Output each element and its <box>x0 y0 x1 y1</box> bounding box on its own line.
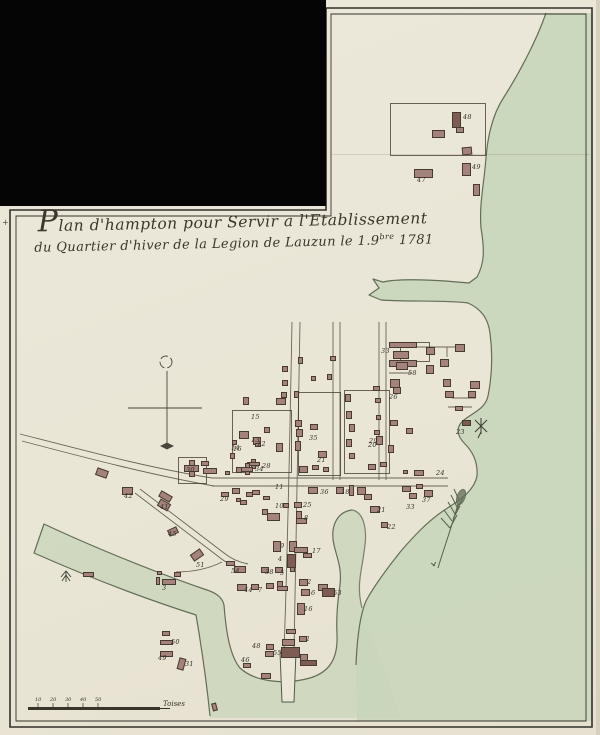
building <box>276 398 286 405</box>
building <box>364 494 372 500</box>
building <box>323 467 329 472</box>
building <box>232 488 240 494</box>
building-number-label: 21 <box>377 507 386 513</box>
building <box>375 398 381 403</box>
building-number-label: 49 <box>158 655 167 661</box>
building-number-label: 18 <box>341 489 350 495</box>
building <box>432 130 445 138</box>
building-number-label: 23 <box>456 429 465 435</box>
scale-tick-label: 40 <box>79 697 87 703</box>
building <box>277 586 288 591</box>
building <box>282 380 288 386</box>
paper-edge <box>596 0 600 735</box>
building-number-label: 16 <box>233 446 242 452</box>
building-number-label: 29 <box>220 496 229 502</box>
building <box>373 386 380 391</box>
building <box>374 430 380 435</box>
building <box>440 359 449 367</box>
building-number-label: 29 <box>369 438 378 444</box>
building-number-label: 35 <box>309 435 318 441</box>
building <box>455 344 465 352</box>
building-number-label: 54 <box>231 568 240 574</box>
building-number-label: 4 <box>278 556 282 562</box>
building-number-label: 17 <box>312 548 321 554</box>
building-number-label: 31 <box>185 661 194 667</box>
building-number-label: 11 <box>275 484 284 490</box>
building <box>162 631 170 636</box>
tree-icon <box>61 571 71 582</box>
building <box>266 583 274 589</box>
building <box>346 439 352 447</box>
building <box>388 445 394 453</box>
building <box>295 441 301 451</box>
building <box>296 429 303 437</box>
building-number-label: 30 <box>186 467 195 473</box>
building <box>396 362 408 370</box>
scale-bar: 1020304050 Toises <box>28 697 185 710</box>
building <box>201 461 209 466</box>
building <box>403 470 408 474</box>
building <box>473 184 480 196</box>
scale-tick-label: 50 <box>95 697 102 703</box>
building <box>462 420 471 426</box>
building <box>330 356 336 361</box>
building <box>303 553 312 558</box>
building <box>426 365 434 374</box>
building-number-label: 33 <box>406 504 415 510</box>
building-number-label: 25 <box>303 502 312 508</box>
building-number-label: 33 <box>381 348 390 354</box>
building <box>290 567 295 572</box>
building-number-label: 41 <box>160 504 169 510</box>
compass-cross-symbol <box>128 356 202 449</box>
building-number-label: 24 <box>436 470 445 476</box>
building <box>349 453 355 459</box>
building-number-label: 47 <box>417 177 426 183</box>
building-number-label: 55 <box>273 650 282 656</box>
building <box>368 464 376 470</box>
building <box>294 502 302 508</box>
building <box>462 147 473 156</box>
building <box>174 572 181 577</box>
pier <box>280 652 296 702</box>
building <box>239 431 249 439</box>
building <box>301 589 310 596</box>
scale-tick-label: 30 <box>65 697 72 703</box>
building <box>264 427 270 433</box>
building <box>240 500 247 505</box>
building <box>261 673 271 679</box>
building-number-label: 15 <box>251 414 260 420</box>
building-number-label: 9 <box>280 543 284 549</box>
building <box>402 486 411 492</box>
scale-tick-label: 10 <box>35 697 42 703</box>
building-number-label: 37 <box>422 497 431 503</box>
building <box>445 391 454 398</box>
building-number-label: 7 <box>258 587 262 593</box>
building <box>406 428 413 434</box>
scale-unit-label: Toises <box>163 700 185 708</box>
building <box>345 394 351 402</box>
building <box>455 406 463 411</box>
building-number-label: 50 <box>171 639 180 645</box>
building <box>389 342 417 348</box>
building-number-label: 8 <box>304 515 308 521</box>
building-number-label: 5 <box>280 570 284 576</box>
building <box>236 498 241 502</box>
building <box>443 379 451 387</box>
building <box>203 468 217 474</box>
map-title: Plan d'hampton pour Servir a l'Etablisse… <box>38 211 359 256</box>
building <box>308 487 318 494</box>
building-number-label: 6 <box>311 590 315 596</box>
building <box>263 496 270 500</box>
building <box>390 420 398 426</box>
building <box>452 112 461 128</box>
building <box>409 493 417 499</box>
margin-cross-mark: + <box>2 218 9 227</box>
building-number-label: 51 <box>196 562 205 568</box>
building <box>225 471 230 475</box>
building-cross <box>241 463 253 475</box>
building <box>230 453 235 459</box>
building <box>327 374 332 380</box>
building-number-label: 46 <box>241 657 250 663</box>
building <box>470 381 480 389</box>
building <box>243 397 249 405</box>
building <box>294 391 299 398</box>
building-number-label: 10 <box>275 503 284 509</box>
building <box>281 647 300 658</box>
building-number-label: 49 <box>472 164 481 170</box>
building-number-label: 1 <box>306 636 310 642</box>
building <box>276 443 283 452</box>
building <box>83 572 94 577</box>
building <box>300 660 317 666</box>
building-number-label: 48 <box>252 643 261 649</box>
building-number-label: 53 <box>333 590 342 596</box>
building-number-label: 26 <box>389 394 398 400</box>
building-number-label: 38 <box>265 569 274 575</box>
building <box>416 484 423 489</box>
building-number-label: 34 <box>255 466 264 472</box>
building <box>349 424 355 432</box>
building-number-label: 2 <box>307 579 311 585</box>
redacted-region <box>0 0 326 206</box>
building-number-label: 42 <box>124 493 133 499</box>
building <box>267 513 280 521</box>
building <box>295 420 302 427</box>
building <box>393 351 409 359</box>
building-number-label: 21 <box>317 457 326 463</box>
building-number-label: 3 <box>162 585 166 591</box>
building-cross-bar <box>241 467 253 472</box>
building <box>380 462 387 467</box>
building <box>298 357 303 364</box>
building-number-label: 12 <box>257 441 266 447</box>
building <box>282 639 295 646</box>
building-number-label: 22 <box>387 524 396 530</box>
building <box>426 347 435 355</box>
building <box>456 127 464 133</box>
building <box>282 366 288 372</box>
building <box>287 554 296 568</box>
building <box>346 411 352 419</box>
map-sheet: 1020304050 Toises 4847493358262023151314… <box>0 0 600 735</box>
building <box>246 492 253 497</box>
building <box>157 571 162 575</box>
building <box>376 415 381 420</box>
building <box>252 490 260 495</box>
scale-tick-label: 20 <box>49 697 57 703</box>
building <box>311 376 316 381</box>
building <box>414 470 424 476</box>
building-number-label: 44 <box>244 587 253 593</box>
building <box>468 391 476 398</box>
building-number-label: 58 <box>408 370 417 376</box>
building-number-label: 16 <box>304 606 313 612</box>
building <box>312 465 319 470</box>
building-number-label: 36 <box>320 489 329 495</box>
building <box>283 503 289 508</box>
building-number-label: 45 <box>168 531 177 537</box>
building-number-label: 48 <box>463 114 472 120</box>
building <box>156 577 160 585</box>
building <box>286 629 296 634</box>
building <box>462 163 471 176</box>
scale-ticks: 1020304050 <box>35 697 102 707</box>
building <box>310 424 318 430</box>
building <box>299 466 308 473</box>
